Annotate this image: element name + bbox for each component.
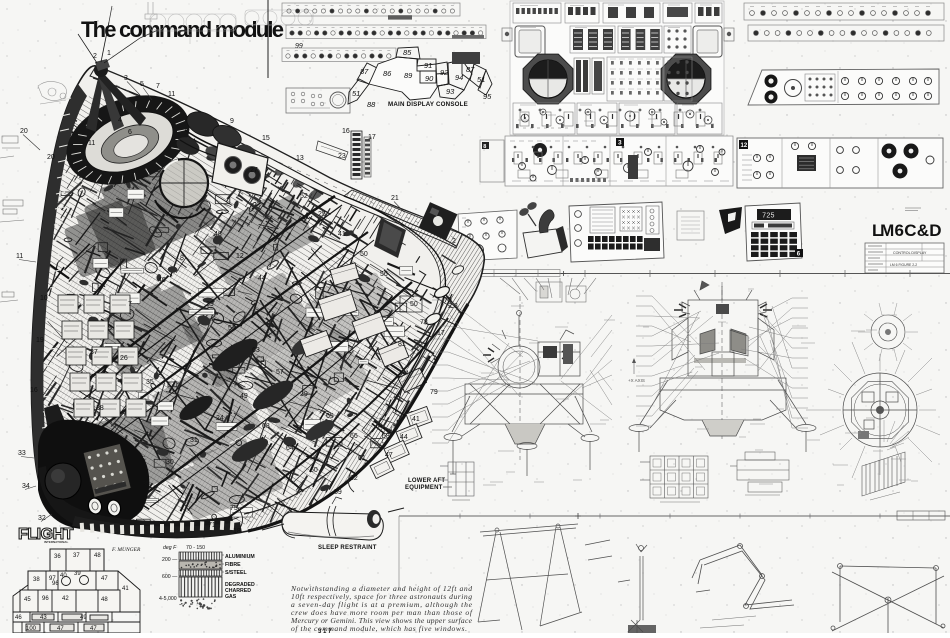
svg-text:56: 56 (380, 271, 388, 278)
svg-text:20: 20 (47, 154, 55, 161)
svg-text:29: 29 (300, 391, 308, 398)
svg-text:11: 11 (88, 140, 95, 147)
svg-text:EQUIPMENT: EQUIPMENT (405, 485, 443, 491)
svg-text:61: 61 (358, 455, 366, 462)
svg-text:ALUMINIUM: ALUMINIUM (225, 554, 255, 560)
svg-text:93: 93 (446, 87, 455, 96)
svg-text:53: 53 (228, 325, 236, 332)
svg-text:LM 6 FIGURE 2-2: LM 6 FIGURE 2-2 (890, 263, 917, 267)
svg-text:20: 20 (20, 128, 28, 135)
svg-text:47: 47 (57, 626, 64, 632)
svg-text:66: 66 (350, 433, 358, 440)
svg-text:35: 35 (146, 379, 154, 386)
svg-text:48: 48 (94, 553, 101, 559)
svg-text:45: 45 (24, 597, 31, 603)
svg-text:47: 47 (90, 626, 97, 632)
svg-text:600 —: 600 — (162, 574, 178, 580)
svg-text:F. MUNGER: F. MUNGER (111, 547, 141, 553)
svg-text:48: 48 (101, 597, 108, 603)
svg-text:2: 2 (93, 53, 97, 60)
svg-text:41: 41 (122, 586, 129, 592)
svg-text:88: 88 (367, 100, 376, 109)
svg-text:99: 99 (295, 43, 303, 50)
svg-text:65: 65 (326, 413, 334, 420)
svg-text:27: 27 (250, 167, 258, 174)
svg-text:71: 71 (208, 522, 216, 529)
svg-text:44: 44 (258, 275, 266, 282)
svg-text:deg F: deg F (163, 545, 177, 551)
svg-text:41: 41 (412, 416, 420, 423)
svg-text:92: 92 (440, 68, 449, 77)
svg-text:47: 47 (385, 452, 393, 459)
svg-text:5: 5 (108, 325, 112, 332)
svg-text:70 - 150: 70 - 150 (186, 545, 205, 551)
svg-text:19: 19 (36, 337, 44, 344)
svg-text:41: 41 (338, 231, 346, 238)
svg-text:35: 35 (142, 481, 150, 488)
svg-text:SLEEP RESTRAINT: SLEEP RESTRAINT (318, 545, 377, 551)
svg-text:89: 89 (404, 71, 413, 80)
svg-text:38: 38 (33, 577, 40, 583)
svg-text:6: 6 (128, 129, 132, 136)
svg-text:16: 16 (30, 387, 38, 394)
svg-text:51: 51 (477, 75, 485, 84)
svg-text:+X AXIS: +X AXIS (628, 378, 645, 383)
svg-text:58: 58 (382, 433, 390, 440)
svg-text:33: 33 (18, 450, 26, 457)
svg-text:46: 46 (15, 615, 22, 621)
svg-text:43: 43 (40, 615, 47, 621)
svg-text:10: 10 (40, 295, 48, 302)
svg-text:2: 2 (452, 238, 456, 245)
svg-text:13: 13 (296, 155, 304, 162)
svg-text:12: 12 (741, 143, 748, 149)
svg-text:90: 90 (425, 74, 434, 83)
svg-text:12: 12 (236, 253, 244, 260)
svg-text:52: 52 (300, 193, 308, 200)
svg-text:50: 50 (410, 301, 418, 308)
svg-text:49: 49 (80, 615, 87, 621)
svg-text:17: 17 (368, 134, 376, 141)
svg-text:38: 38 (96, 405, 104, 412)
svg-text:49: 49 (240, 393, 248, 400)
svg-text:725: 725 (762, 213, 775, 221)
svg-text:40: 40 (158, 277, 166, 284)
svg-text:48: 48 (214, 231, 222, 238)
svg-text:82: 82 (350, 475, 358, 482)
svg-text:200 —: 200 — (162, 557, 178, 563)
svg-text:42: 42 (62, 596, 69, 602)
svg-text:23: 23 (338, 153, 346, 160)
svg-text:37: 37 (90, 349, 98, 356)
svg-text:26: 26 (120, 355, 128, 362)
svg-text:The command module: The command module (81, 17, 284, 42)
svg-text:40: 40 (60, 573, 67, 579)
svg-text:24: 24 (216, 415, 224, 422)
svg-text:39: 39 (74, 571, 81, 577)
svg-text:86: 86 (383, 69, 392, 78)
svg-text:60: 60 (310, 467, 318, 474)
svg-text:1: 1 (107, 50, 111, 57)
svg-text:96: 96 (42, 596, 49, 602)
svg-text:CONTROL DISPLAY: CONTROL DISPLAY (893, 251, 927, 255)
svg-text:18: 18 (233, 528, 241, 535)
svg-text:87: 87 (360, 67, 369, 76)
svg-text:5: 5 (140, 81, 144, 88)
svg-text:37: 37 (73, 553, 80, 559)
svg-text:64: 64 (286, 445, 294, 452)
svg-text:95: 95 (483, 92, 492, 101)
svg-text:44: 44 (400, 434, 408, 441)
svg-text:57: 57 (276, 369, 284, 376)
svg-text:63: 63 (252, 347, 260, 354)
svg-text:17: 17 (437, 330, 445, 337)
svg-text:78: 78 (420, 319, 428, 326)
svg-text:4-5,000: 4-5,000 (159, 596, 177, 602)
svg-text:96: 96 (52, 581, 59, 587)
svg-text:94: 94 (455, 73, 463, 82)
svg-text:79: 79 (444, 297, 452, 304)
svg-text:36: 36 (54, 554, 61, 560)
svg-text:3: 3 (124, 75, 128, 82)
svg-text:85: 85 (403, 48, 412, 57)
svg-text:59: 59 (334, 489, 342, 496)
svg-text:LM 6 C & D: LM 6 C & D (872, 221, 942, 240)
svg-text:4: 4 (118, 117, 122, 124)
svg-text:FIBRE: FIBRE (225, 562, 241, 568)
svg-text:INTERNATIONAL: INTERNATIONAL (44, 540, 68, 544)
svg-text:GAS: GAS (225, 594, 237, 600)
svg-text:3: 3 (618, 140, 622, 147)
svg-text:91: 91 (424, 61, 432, 70)
svg-text:31: 31 (190, 437, 198, 444)
svg-text:79: 79 (430, 389, 438, 396)
svg-text:47: 47 (101, 576, 108, 582)
svg-text:15: 15 (262, 135, 270, 142)
svg-text:39: 39 (206, 301, 214, 308)
svg-text:68: 68 (262, 423, 270, 430)
svg-text:30: 30 (166, 459, 174, 466)
svg-text:LOWER AFT: LOWER AFT (408, 478, 445, 484)
svg-text:8: 8 (180, 255, 184, 262)
svg-text:25: 25 (318, 211, 326, 218)
svg-text:21: 21 (391, 195, 399, 202)
svg-text:16: 16 (342, 128, 350, 135)
svg-text:87: 87 (466, 65, 475, 74)
svg-text:MAIN DISPLAY CONSOLE: MAIN DISPLAY CONSOLE (388, 101, 468, 108)
svg-text:75: 75 (230, 505, 238, 512)
svg-text:11: 11 (16, 253, 23, 260)
svg-text:8: 8 (483, 144, 486, 150)
svg-text:9: 9 (230, 118, 234, 125)
svg-text:50: 50 (360, 251, 368, 258)
svg-text:100: 100 (26, 626, 37, 632)
svg-text:3 1 7: 3 1 7 (318, 629, 332, 633)
svg-text:51: 51 (352, 89, 360, 98)
svg-text:7: 7 (156, 83, 160, 90)
svg-text:11: 11 (168, 91, 175, 98)
svg-text:S/STEEL: S/STEEL (225, 570, 247, 576)
svg-text:81: 81 (398, 341, 406, 348)
svg-text:7: 7 (128, 301, 132, 308)
